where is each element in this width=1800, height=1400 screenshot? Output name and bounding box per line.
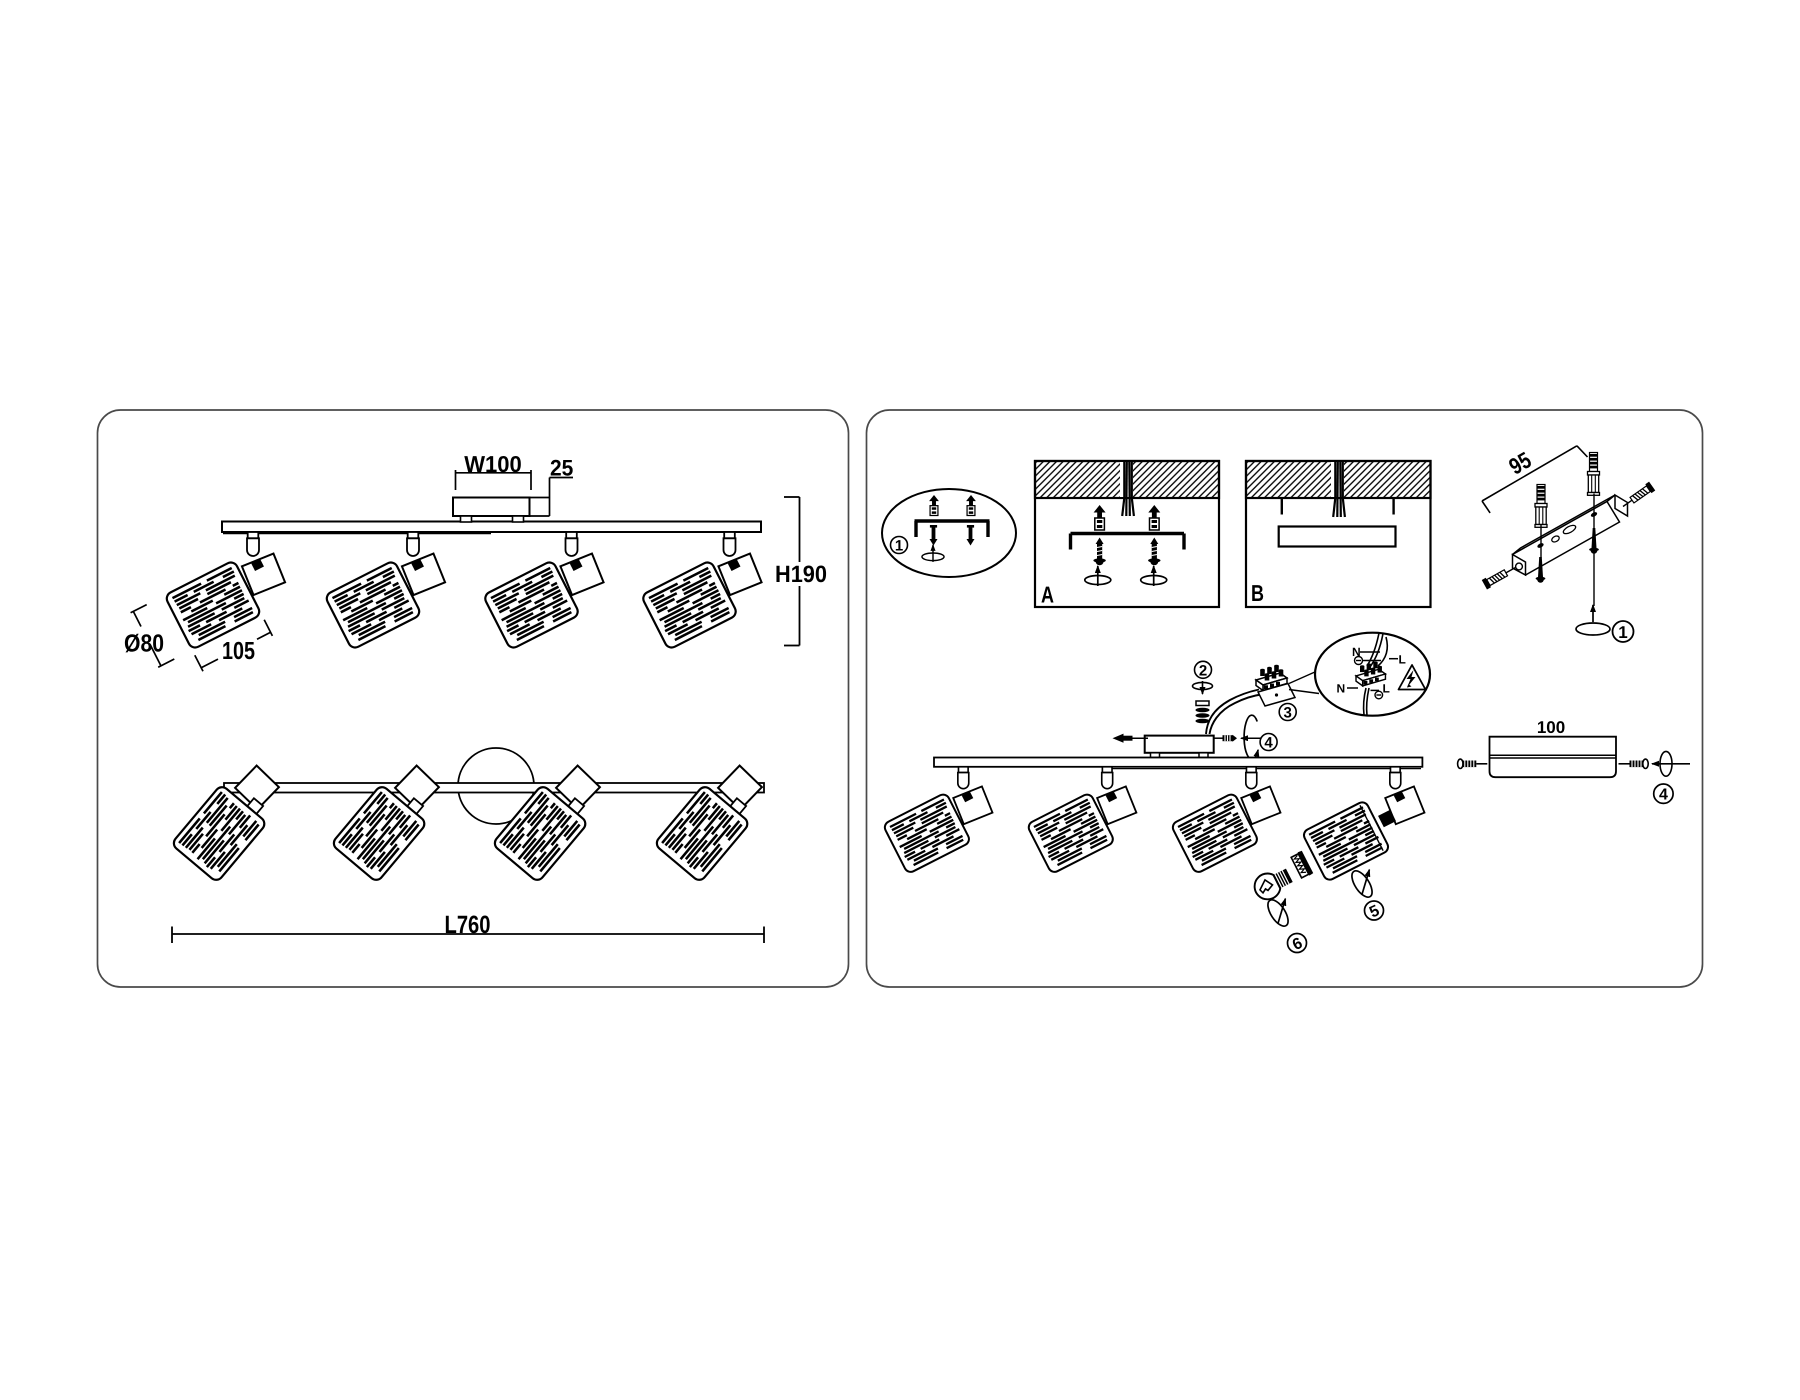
svg-text:N: N	[1337, 682, 1346, 696]
svg-text:25: 25	[550, 456, 573, 481]
svg-text:L760: L760	[445, 911, 491, 939]
svg-text:L: L	[1399, 653, 1406, 667]
svg-text:105: 105	[222, 638, 255, 665]
svg-text:H190: H190	[775, 562, 827, 588]
svg-text:2: 2	[1199, 662, 1207, 679]
svg-text:Ø80: Ø80	[124, 631, 164, 658]
svg-text:B: B	[1251, 580, 1264, 606]
svg-text:W100: W100	[464, 451, 522, 477]
svg-text:L: L	[1383, 681, 1390, 695]
svg-text:1: 1	[895, 538, 903, 555]
svg-text:100: 100	[1537, 718, 1565, 737]
svg-text:4: 4	[1264, 735, 1273, 752]
svg-text:A: A	[1041, 582, 1054, 608]
svg-text:4: 4	[1659, 787, 1668, 804]
svg-text:3: 3	[1284, 705, 1292, 722]
svg-text:1: 1	[1618, 623, 1627, 642]
